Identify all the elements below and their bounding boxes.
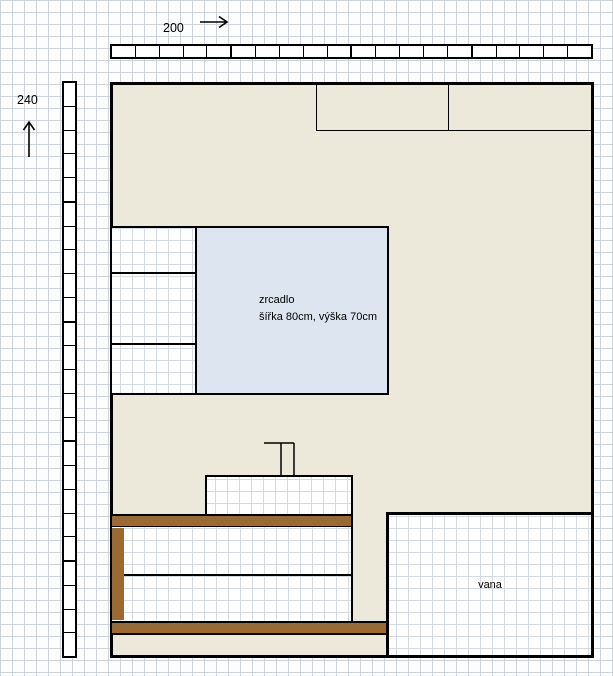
ruler-cell <box>64 562 75 586</box>
washbasin-shape[interactable] <box>205 475 353 516</box>
ruler-cell <box>64 586 75 610</box>
ruler-cell <box>448 46 473 57</box>
ruler-cell <box>184 46 208 57</box>
ruler-cell <box>256 46 280 57</box>
ruler-cell <box>64 107 75 131</box>
height-dimension-label[interactable]: 240 <box>17 93 38 107</box>
shelf-unit[interactable] <box>110 226 198 395</box>
ruler-cell <box>520 46 544 57</box>
top-cabinet-left[interactable] <box>316 85 449 131</box>
wood-countertop[interactable] <box>110 514 353 528</box>
ruler-cell <box>497 46 521 57</box>
ruler-cell <box>64 131 75 155</box>
ruler-cell <box>64 227 75 251</box>
cabinet-shelf-divider <box>124 574 351 576</box>
ruler-cell <box>376 46 400 57</box>
ruler-cell <box>64 83 75 107</box>
ruler-cell <box>232 46 256 57</box>
arrow-right-icon[interactable] <box>198 13 232 36</box>
ruler-cell <box>112 46 136 57</box>
ruler-cell <box>207 46 232 57</box>
ruler-cell <box>64 203 75 227</box>
bathtub-shape[interactable]: vana <box>386 512 594 658</box>
ruler-cell <box>304 46 328 57</box>
ruler-cell <box>424 46 448 57</box>
bathtub-label: vana <box>478 579 502 591</box>
ruler-cell <box>64 323 75 347</box>
vertical-tile-ruler[interactable] <box>62 81 77 658</box>
shelf-box <box>112 345 196 393</box>
width-dimension-label[interactable]: 200 <box>163 21 184 35</box>
ruler-cell <box>64 514 75 538</box>
ruler-cell <box>280 46 304 57</box>
ruler-cell <box>400 46 424 57</box>
ruler-cell <box>64 537 75 562</box>
ruler-cell <box>568 46 591 57</box>
ruler-cell <box>64 490 75 514</box>
ruler-cell <box>544 46 568 57</box>
wood-side-post <box>112 528 124 620</box>
mirror-label-line2: šířka 80cm, výška 70cm <box>259 309 377 326</box>
mirror-label-line1: zrcadlo <box>259 292 377 309</box>
arrow-up-icon[interactable] <box>21 117 37 164</box>
wood-bottom-board[interactable] <box>110 621 388 635</box>
ruler-cell <box>473 46 497 57</box>
mirror-label: zrcadlo šířka 80cm, výška 70cm <box>259 292 377 326</box>
ruler-cell <box>160 46 184 57</box>
ruler-cell <box>64 466 75 490</box>
horizontal-tile-ruler[interactable] <box>110 44 593 59</box>
ruler-cell <box>64 298 75 323</box>
ruler-cell <box>64 370 75 394</box>
mirror-shape[interactable]: zrcadlo šířka 80cm, výška 70cm <box>195 226 389 395</box>
ruler-cell <box>328 46 353 57</box>
faucet-shape[interactable] <box>262 440 298 480</box>
ruler-cell <box>64 250 75 274</box>
ruler-cell <box>64 633 75 656</box>
ruler-cell <box>64 418 75 443</box>
ruler-cell <box>64 178 75 203</box>
shelf-box <box>112 274 196 345</box>
top-cabinet-right[interactable] <box>448 85 592 131</box>
ruler-cell <box>64 274 75 298</box>
shelf-box <box>112 228 196 274</box>
ruler-cell <box>136 46 160 57</box>
ruler-cell <box>64 394 75 418</box>
drawing-canvas: 200 240 zrcadlo šířka 80cm, výška 70cm <box>0 0 613 676</box>
ruler-cell <box>352 46 376 57</box>
ruler-cell <box>64 610 75 634</box>
ruler-cell <box>64 154 75 178</box>
ruler-cell <box>64 442 75 466</box>
ruler-cell <box>64 346 75 370</box>
